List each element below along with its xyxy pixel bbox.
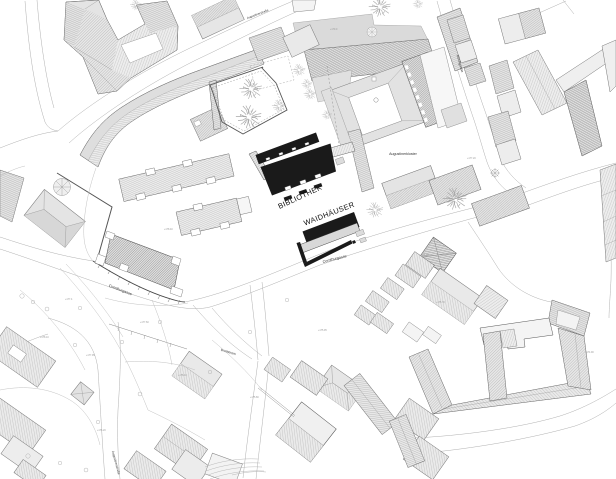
svg-text:+175.80: +175.80	[250, 396, 259, 399]
svg-text:+176.20: +176.20	[97, 429, 106, 432]
svg-text:+177.4: +177.4	[65, 298, 73, 301]
svg-text:+176.30: +176.30	[420, 254, 429, 257]
svg-text:+177.95: +177.95	[86, 354, 95, 357]
svg-text:+179.0: +179.0	[330, 28, 338, 31]
svg-text:Augustinerkloster: Augustinerkloster	[389, 152, 418, 156]
svg-text:+175.70: +175.70	[436, 301, 445, 304]
svg-text:+176.40: +176.40	[178, 374, 187, 377]
svg-text:+177.20: +177.20	[467, 157, 476, 160]
svg-text:+177.60: +177.60	[140, 321, 149, 324]
svg-text:+178.40: +178.40	[164, 228, 173, 231]
svg-text:+175.95: +175.95	[318, 329, 327, 332]
svg-text:+174.90: +174.90	[585, 351, 594, 354]
svg-text:+178.10: +178.10	[40, 336, 49, 339]
